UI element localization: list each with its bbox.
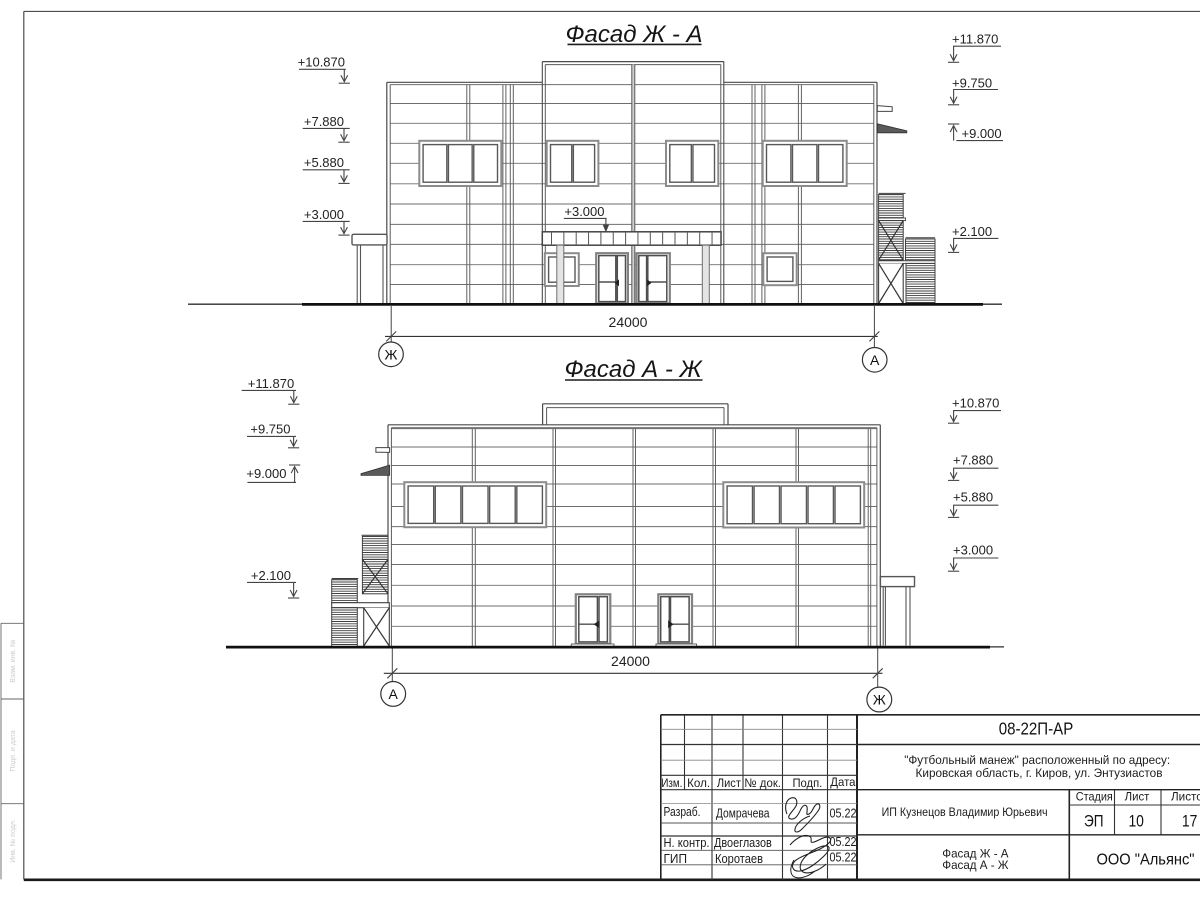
svg-text:Ж: Ж [873,692,886,708]
svg-text:Изм.: Изм. [661,776,682,790]
svg-text:Лист: Лист [1125,790,1150,803]
svg-text:+3.000: +3.000 [953,542,993,557]
svg-text:+10.870: +10.870 [952,395,999,410]
svg-text:ЭП: ЭП [1084,811,1104,830]
svg-text:+5.880: +5.880 [953,489,993,504]
svg-text:+9.000: +9.000 [962,126,1002,141]
svg-text:Двоеглазов: Двоеглазов [714,835,772,850]
svg-text:05.22: 05.22 [830,806,857,821]
svg-text:+3.000: +3.000 [304,207,344,222]
svg-text:Стадия: Стадия [1076,790,1113,803]
svg-text:Взам. инв. №: Взам. инв. № [10,639,17,682]
svg-text:+3.000: +3.000 [564,204,604,219]
svg-text:Домрачева: Домрачева [716,806,770,821]
svg-text:Ж: Ж [385,346,398,362]
svg-text:10: 10 [1128,811,1144,830]
svg-text:05.22: 05.22 [830,834,857,849]
svg-text:Подп.: Подп. [793,776,823,790]
svg-text:Дата: Дата [830,775,855,789]
svg-text:А: А [389,686,399,702]
svg-text:Лист: Лист [717,776,741,790]
svg-text:Коротаев: Коротаев [715,851,763,866]
svg-text:+10.870: +10.870 [298,55,345,70]
svg-text:24000: 24000 [611,653,650,669]
svg-text:08-22П-АР: 08-22П-АР [999,718,1074,738]
svg-text:+9.750: +9.750 [250,421,290,436]
svg-text:ИП Кузнецов Владимир Юрьевич: ИП Кузнецов Владимир Юрьевич [882,805,1048,819]
svg-text:"Футбольный манеж" расположенн: "Футбольный манеж" расположенный по адре… [904,753,1170,767]
svg-text:24000: 24000 [609,314,648,330]
svg-text:+11.870: +11.870 [952,31,998,46]
svg-text:17: 17 [1182,811,1198,830]
svg-text:Кол.: Кол. [687,776,710,790]
svg-text:Кировская область, г. Киров, у: Кировская область, г. Киров, ул. Энтузиа… [916,766,1163,780]
svg-text:Листов: Листов [1171,790,1200,803]
svg-text:Подп. и дата: Подп. и дата [10,730,17,771]
svg-text:А: А [870,352,880,368]
svg-text:+7.880: +7.880 [304,114,344,129]
svg-text:+7.880: +7.880 [953,452,993,467]
svg-text:+5.880: +5.880 [304,155,344,170]
svg-text:05.22: 05.22 [830,850,857,865]
svg-text:Фасад А - Ж: Фасад А - Ж [942,859,1009,872]
svg-text:Разраб.: Разраб. [664,804,701,819]
svg-text:+2.100: +2.100 [251,568,291,583]
svg-text:+9.000: +9.000 [246,466,286,481]
svg-text:Н. контр.: Н. контр. [664,835,710,850]
svg-text:+2.100: +2.100 [952,224,992,239]
svg-text:+9.750: +9.750 [952,76,992,91]
svg-text:№ док.: № док. [744,776,781,790]
svg-text:ООО "Альянс": ООО "Альянс" [1097,851,1195,868]
svg-text:+11.870: +11.870 [248,376,294,391]
svg-text:ГИП: ГИП [664,851,688,866]
svg-text:Фасад А - Ж: Фасад А - Ж [564,356,703,383]
svg-text:Инв. № подл.: Инв. № подл. [10,819,17,863]
